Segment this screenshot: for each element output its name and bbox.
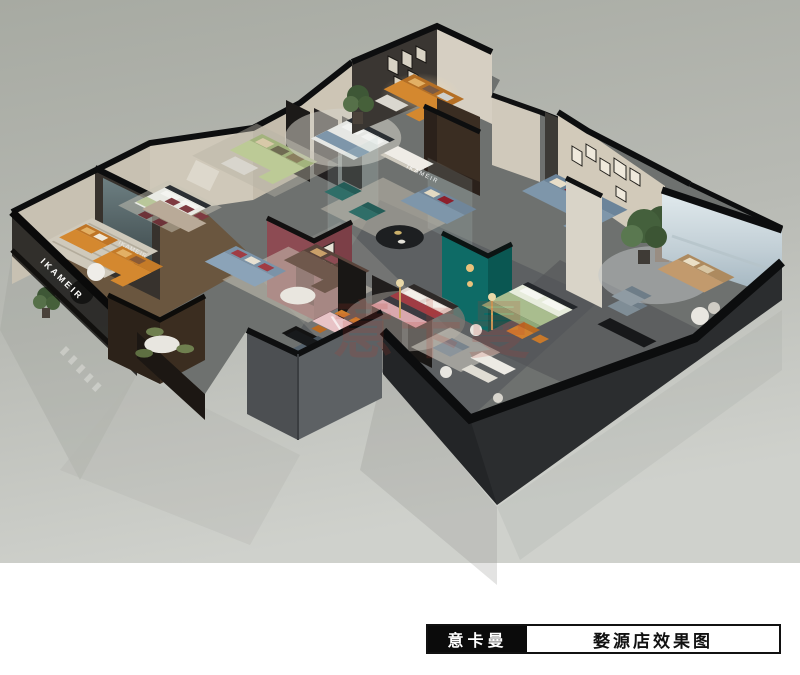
brand-cell: 意卡曼 [428,626,527,652]
caption-cell: 婺源店效果图 [527,626,779,652]
watermark: 意卡曼 [332,297,536,366]
white-column [566,178,602,308]
title-block: 意卡曼 婺源店效果图 [426,624,781,654]
showroom-render: IKAMEIR [0,0,800,675]
round-table-white [87,263,105,281]
white-paper-band [0,563,800,675]
